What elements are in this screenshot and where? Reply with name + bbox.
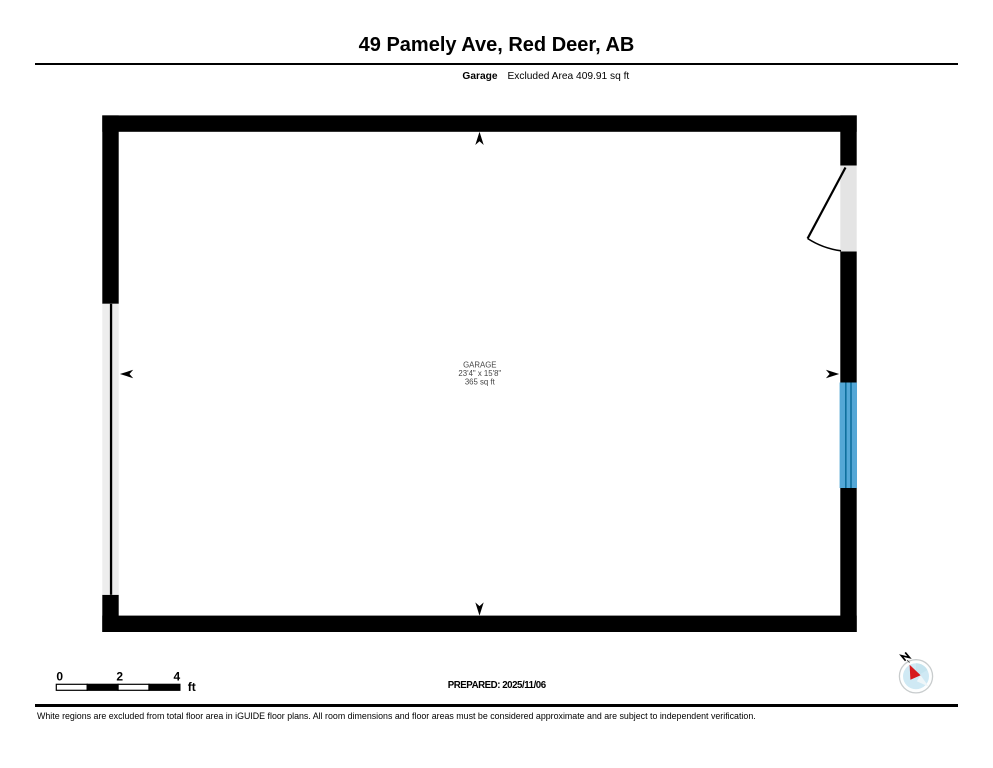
svg-text:PREPARED: 2025/11/06: PREPARED: 2025/11/06 (448, 680, 547, 691)
svg-text:4: 4 (174, 670, 181, 684)
svg-text:2: 2 (116, 670, 123, 684)
svg-text:365 sq ft: 365 sq ft (465, 377, 496, 386)
svg-text:0: 0 (56, 670, 63, 684)
svg-text:ft: ft (188, 680, 196, 694)
